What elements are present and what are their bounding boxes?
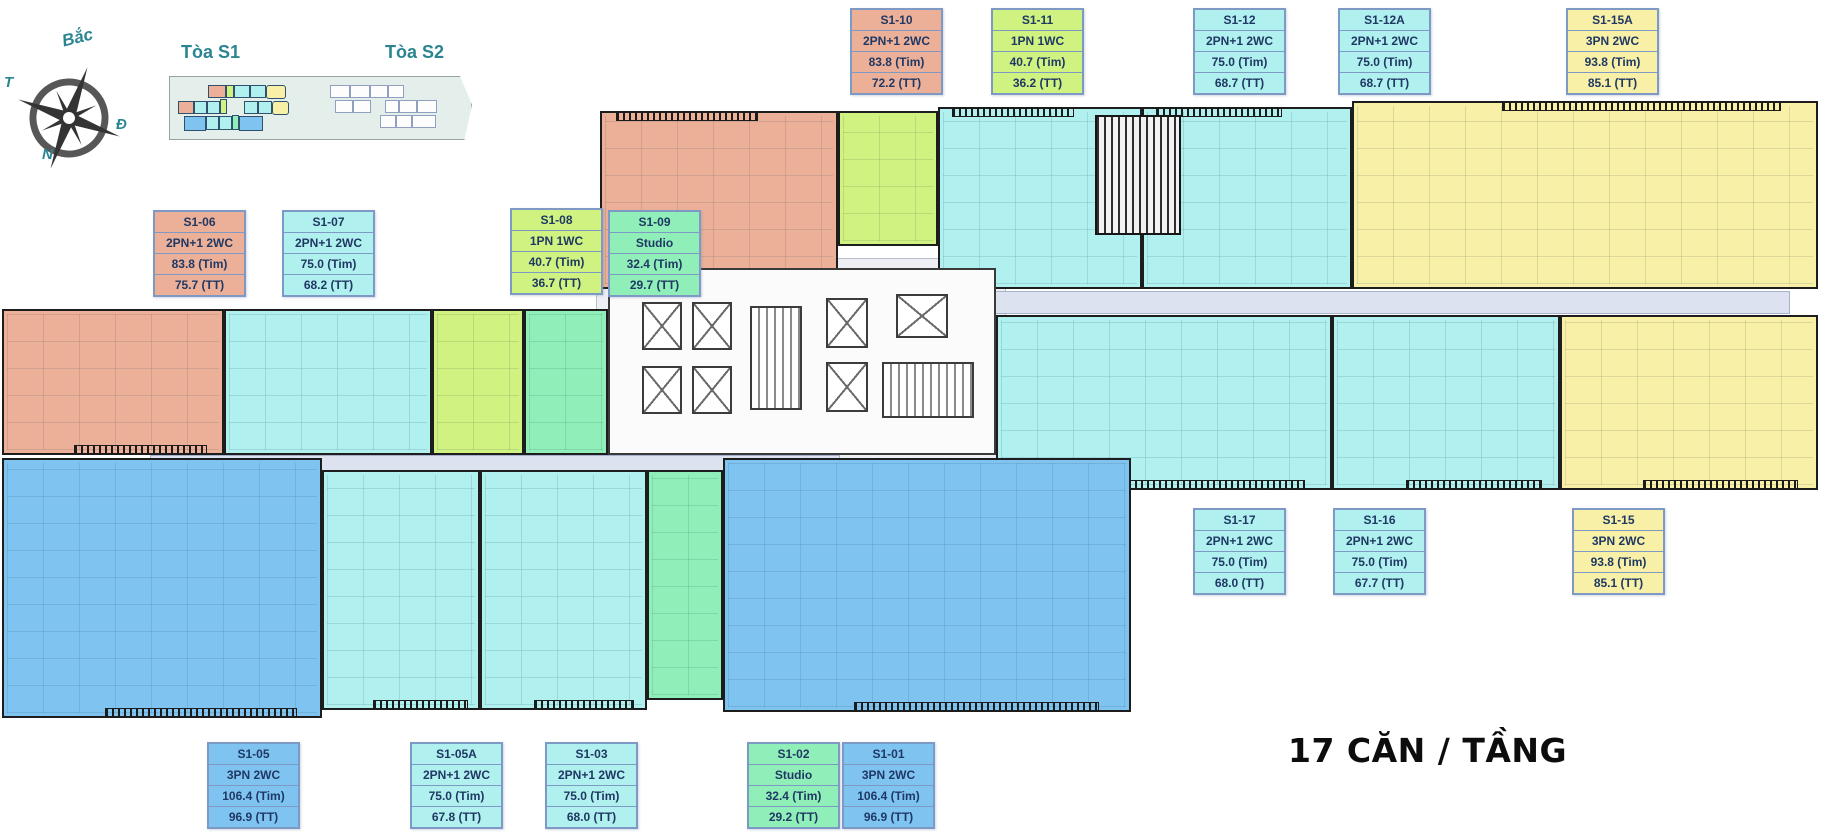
unit-area-tt: 68.7 (TT): [1195, 73, 1284, 93]
unit-area-tt: 68.2 (TT): [284, 275, 373, 295]
unit-area-tim: 75.0 (Tim): [284, 254, 373, 275]
unit-type: 3PN 2WC: [209, 765, 298, 786]
unit-area-tim: 75.0 (Tim): [1335, 552, 1424, 573]
unit-type: Studio: [749, 765, 838, 786]
unit-area-tim: 40.7 (Tim): [512, 252, 601, 273]
unit-card-s1-12: S1-122PN+1 2WC75.0 (Tim)68.7 (TT): [1193, 8, 1286, 95]
unit-id: S1-09: [610, 212, 699, 233]
unit-type: 2PN+1 2WC: [1335, 531, 1424, 552]
unit-id: S1-15A: [1568, 10, 1657, 31]
unit-area-tim: 106.4 (Tim): [209, 786, 298, 807]
unit-area-tim: 75.0 (Tim): [547, 786, 636, 807]
unit-type: 3PN 2WC: [844, 765, 933, 786]
unit-id: S1-01: [844, 744, 933, 765]
unit-card-s1-09: S1-09Studio32.4 (Tim)29.7 (TT): [608, 210, 701, 297]
unit-id: S1-06: [155, 212, 244, 233]
unit-type: 2PN+1 2WC: [852, 31, 941, 52]
unit-type: 2PN+1 2WC: [547, 765, 636, 786]
unit-type: 2PN+1 2WC: [1195, 531, 1284, 552]
unit-area-tt: 68.0 (TT): [1195, 573, 1284, 593]
unit-area-tt: 68.0 (TT): [547, 807, 636, 827]
unit-area-tt: 85.1 (TT): [1574, 573, 1663, 593]
unit-card-s1-03: S1-032PN+1 2WC75.0 (Tim)68.0 (TT): [545, 742, 638, 829]
unit-area-tim: 75.0 (Tim): [1340, 52, 1429, 73]
unit-type: 2PN+1 2WC: [155, 233, 244, 254]
unit-id: S1-12: [1195, 10, 1284, 31]
unit-type: Studio: [610, 233, 699, 254]
unit-area-tim: 83.8 (Tim): [155, 254, 244, 275]
unit-id: S1-08: [512, 210, 601, 231]
unit-id: S1-15: [1574, 510, 1663, 531]
unit-id: S1-05: [209, 744, 298, 765]
unit-area-tim: 93.8 (Tim): [1568, 52, 1657, 73]
unit-type: 3PN 2WC: [1574, 531, 1663, 552]
unit-type: 2PN+1 2WC: [1195, 31, 1284, 52]
unit-id: S1-16: [1335, 510, 1424, 531]
unit-area-tt: 96.9 (TT): [209, 807, 298, 827]
unit-type: 1PN 1WC: [512, 231, 601, 252]
unit-card-s1-02: S1-02Studio32.4 (Tim)29.2 (TT): [747, 742, 840, 829]
unit-cards: S1-102PN+1 2WC83.8 (Tim)72.2 (TT)S1-111P…: [0, 0, 1823, 837]
unit-id: S1-11: [993, 10, 1082, 31]
unit-area-tim: 106.4 (Tim): [844, 786, 933, 807]
unit-id: S1-17: [1195, 510, 1284, 531]
unit-card-s1-11: S1-111PN 1WC40.7 (Tim)36.2 (TT): [991, 8, 1084, 95]
unit-area-tim: 75.0 (Tim): [412, 786, 501, 807]
unit-area-tt: 36.2 (TT): [993, 73, 1082, 93]
unit-area-tt: 75.7 (TT): [155, 275, 244, 295]
unit-area-tim: 93.8 (Tim): [1574, 552, 1663, 573]
unit-card-s1-06: S1-062PN+1 2WC83.8 (Tim)75.7 (TT): [153, 210, 246, 297]
unit-card-s1-12a: S1-12A2PN+1 2WC75.0 (Tim)68.7 (TT): [1338, 8, 1431, 95]
unit-area-tim: 32.4 (Tim): [749, 786, 838, 807]
floor-plan-page: Bắc T Đ N Tòa S1 Tòa S2: [0, 0, 1823, 837]
unit-card-s1-10: S1-102PN+1 2WC83.8 (Tim)72.2 (TT): [850, 8, 943, 95]
unit-id: S1-02: [749, 744, 838, 765]
unit-type: 2PN+1 2WC: [284, 233, 373, 254]
unit-card-s1-17: S1-172PN+1 2WC75.0 (Tim)68.0 (TT): [1193, 508, 1286, 595]
unit-area-tim: 32.4 (Tim): [610, 254, 699, 275]
unit-area-tt: 72.2 (TT): [852, 73, 941, 93]
unit-area-tt: 68.7 (TT): [1340, 73, 1429, 93]
unit-card-s1-15a: S1-15A3PN 2WC93.8 (Tim)85.1 (TT): [1566, 8, 1659, 95]
unit-card-s1-16: S1-162PN+1 2WC75.0 (Tim)67.7 (TT): [1333, 508, 1426, 595]
unit-area-tt: 85.1 (TT): [1568, 73, 1657, 93]
unit-card-s1-08: S1-081PN 1WC40.7 (Tim)36.7 (TT): [510, 208, 603, 295]
unit-id: S1-10: [852, 10, 941, 31]
unit-area-tim: 75.0 (Tim): [1195, 52, 1284, 73]
unit-card-s1-01: S1-013PN 2WC106.4 (Tim)96.9 (TT): [842, 742, 935, 829]
unit-area-tt: 67.8 (TT): [412, 807, 501, 827]
unit-card-s1-07: S1-072PN+1 2WC75.0 (Tim)68.2 (TT): [282, 210, 375, 297]
unit-type: 1PN 1WC: [993, 31, 1082, 52]
unit-id: S1-12A: [1340, 10, 1429, 31]
unit-area-tim: 40.7 (Tim): [993, 52, 1082, 73]
unit-area-tim: 83.8 (Tim): [852, 52, 941, 73]
unit-card-s1-05: S1-053PN 2WC106.4 (Tim)96.9 (TT): [207, 742, 300, 829]
unit-id: S1-05A: [412, 744, 501, 765]
unit-area-tt: 36.7 (TT): [512, 273, 601, 293]
unit-area-tt: 29.2 (TT): [749, 807, 838, 827]
unit-id: S1-03: [547, 744, 636, 765]
unit-type: 2PN+1 2WC: [412, 765, 501, 786]
unit-type: 3PN 2WC: [1568, 31, 1657, 52]
unit-area-tt: 96.9 (TT): [844, 807, 933, 827]
unit-area-tt: 29.7 (TT): [610, 275, 699, 295]
unit-card-s1-05a: S1-05A2PN+1 2WC75.0 (Tim)67.8 (TT): [410, 742, 503, 829]
unit-area-tim: 75.0 (Tim): [1195, 552, 1284, 573]
unit-card-s1-15: S1-153PN 2WC93.8 (Tim)85.1 (TT): [1572, 508, 1665, 595]
units-per-floor-label: 17 CĂN / TẦNG: [1288, 731, 1588, 770]
unit-type: 2PN+1 2WC: [1340, 31, 1429, 52]
unit-area-tt: 67.7 (TT): [1335, 573, 1424, 593]
unit-id: S1-07: [284, 212, 373, 233]
